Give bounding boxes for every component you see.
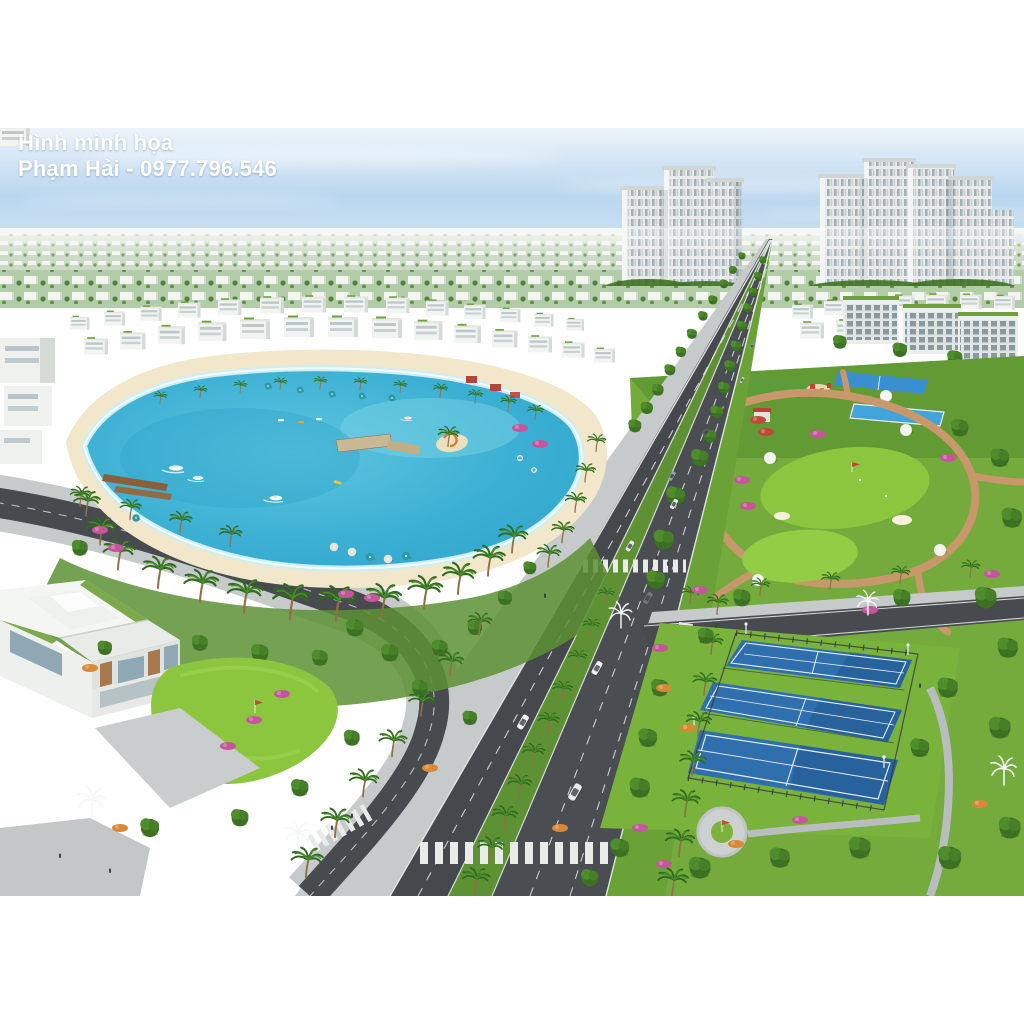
watermark-title: Hình minh họa [18,130,277,156]
horizon-haze [0,228,1024,262]
aerial-render [0,128,1024,896]
marketing-image-canvas: Hình minh họa Phạm Hải - 0977.796.546 [0,0,1024,1024]
tennis-courts [600,622,960,838]
watermark: Hình minh họa Phạm Hải - 0977.796.546 [18,130,277,182]
watermark-phone: Phạm Hải - 0977.796.546 [18,156,277,182]
aerial-photo: Hình minh họa Phạm Hải - 0977.796.546 [0,128,1024,896]
